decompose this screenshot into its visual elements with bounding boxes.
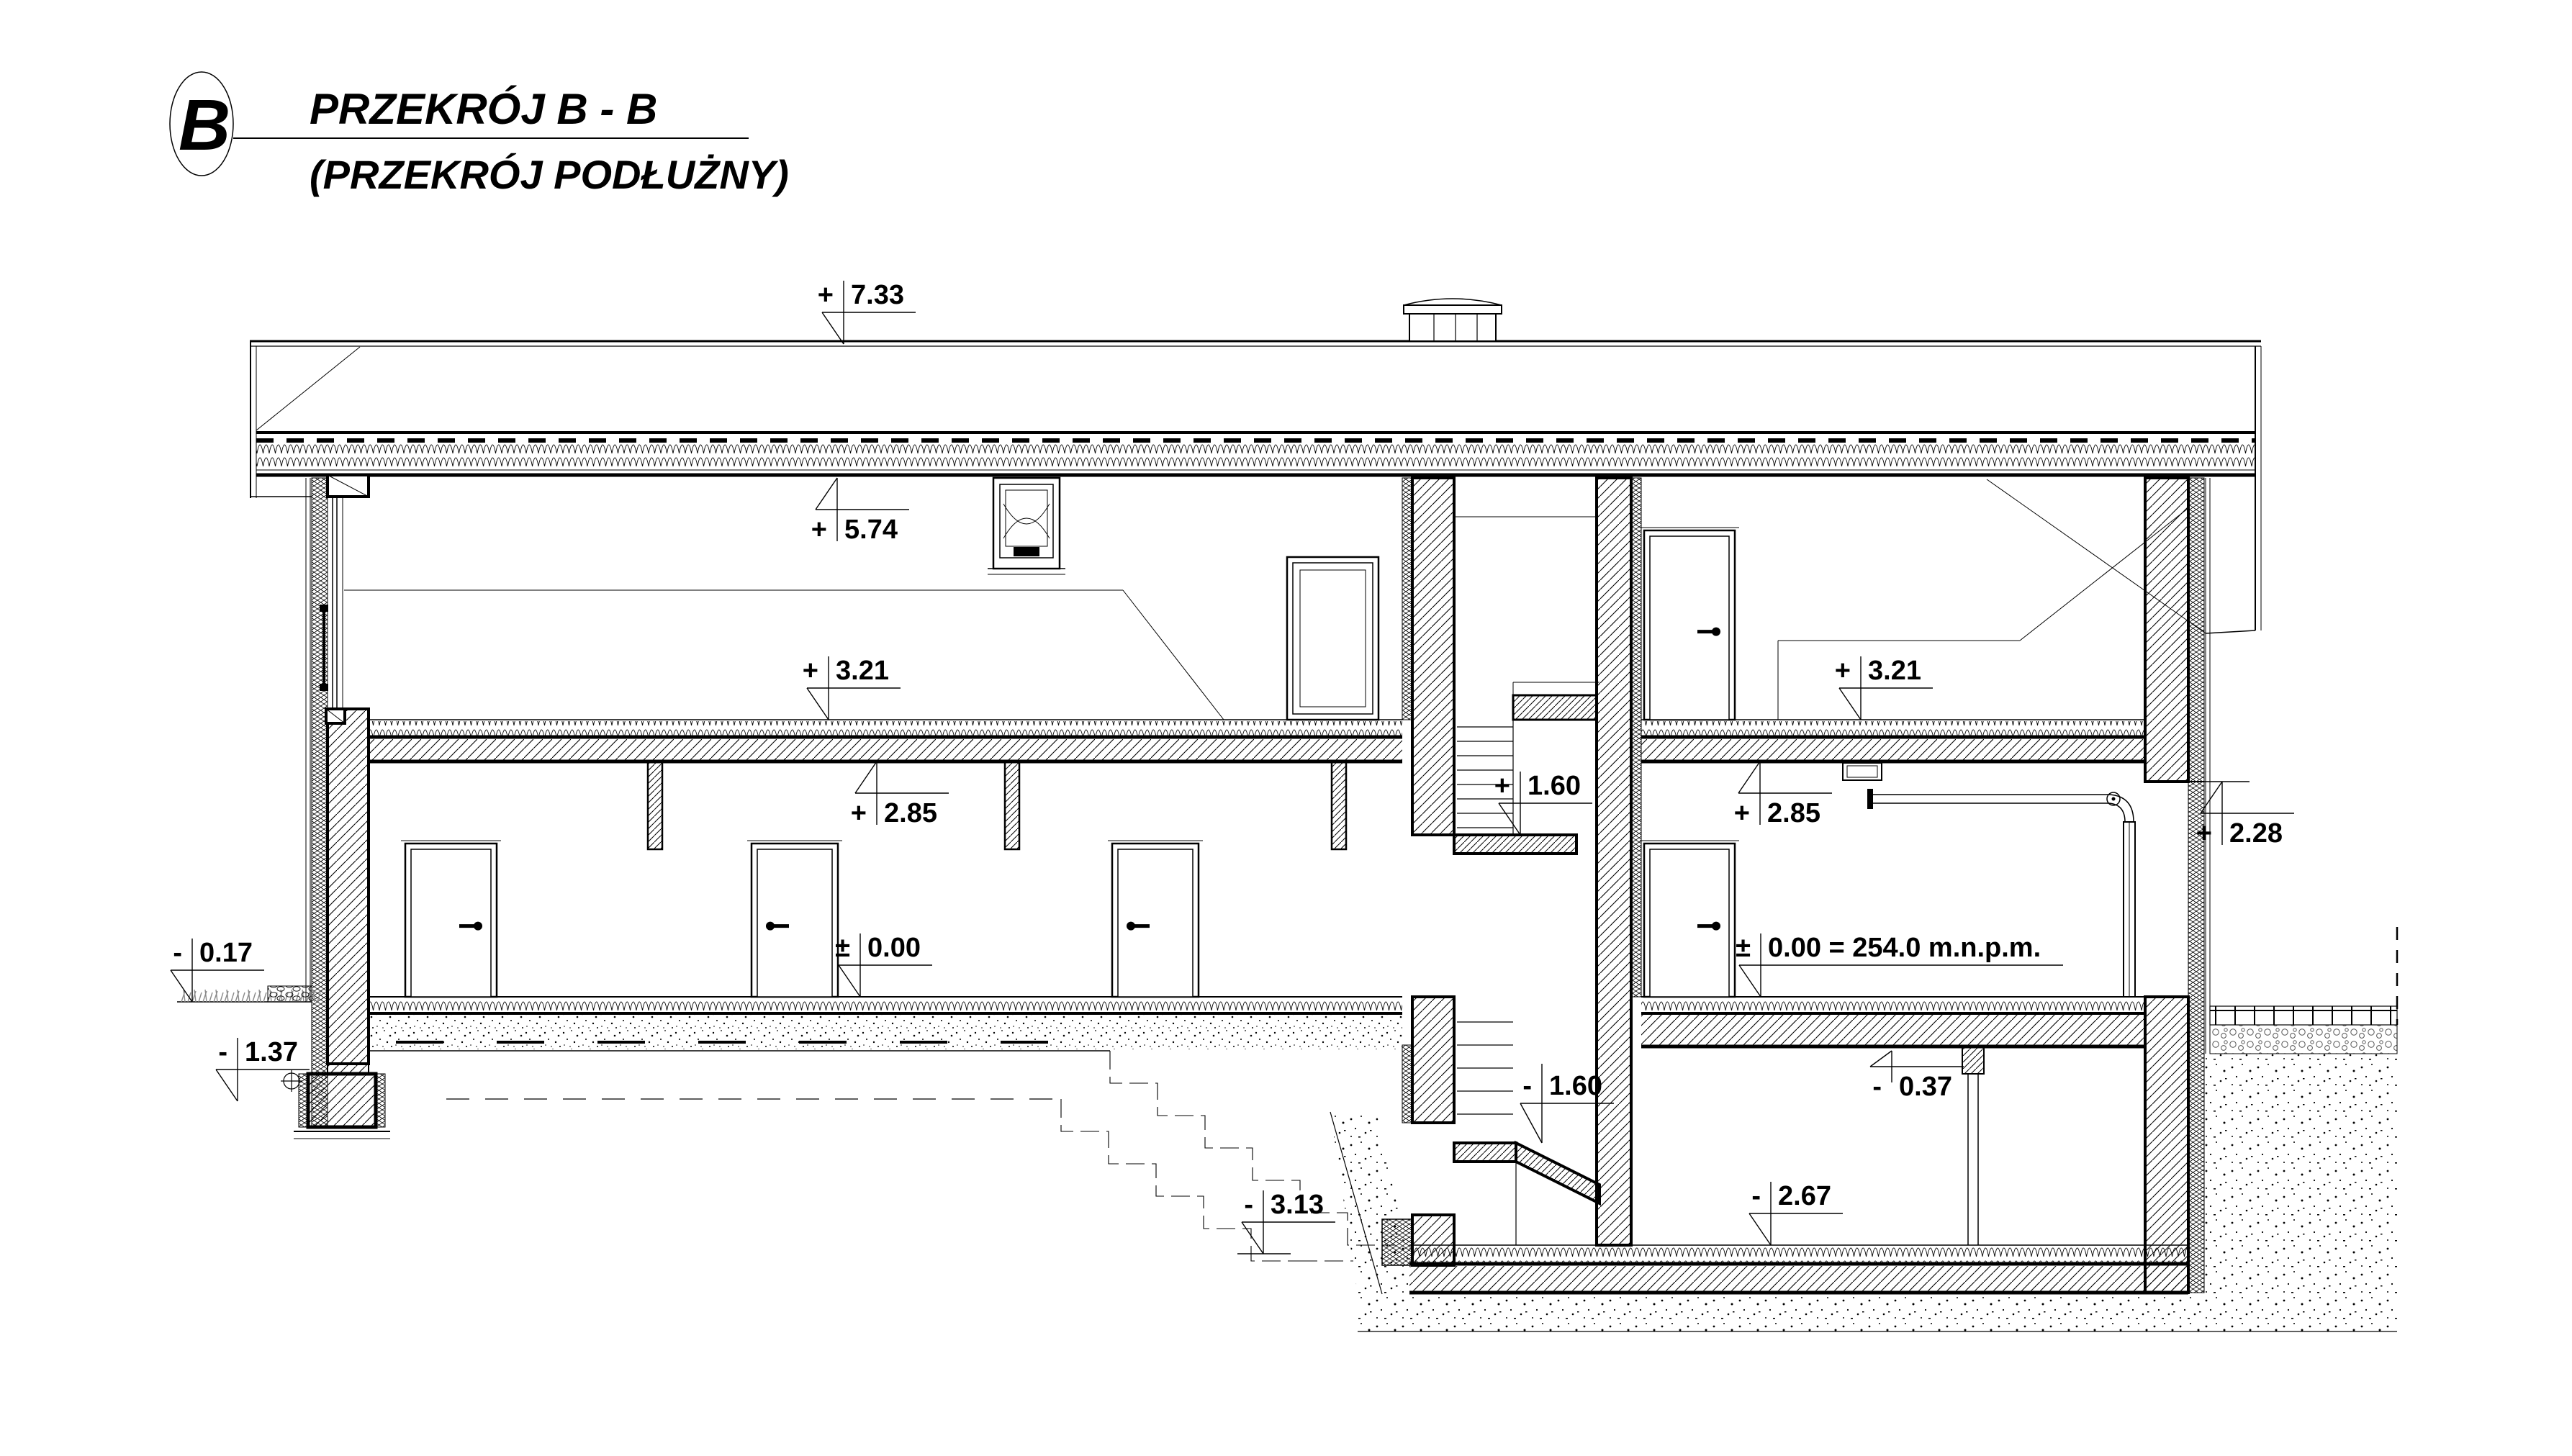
svg-text:5.74: 5.74 <box>844 515 898 545</box>
door <box>1640 528 1739 720</box>
svg-text:0.17: 0.17 <box>199 938 253 968</box>
stairwell-left-wall <box>1382 478 1454 1265</box>
landing-plus160 <box>1454 835 1576 854</box>
svg-text:1.60: 1.60 <box>1549 1071 1602 1101</box>
ground-floor-slab <box>369 997 2145 1051</box>
left-footing <box>281 1064 390 1139</box>
ceiling-lamp <box>1843 763 1882 780</box>
soil-right <box>2204 1054 2397 1294</box>
attic-stair-landing-edge <box>1513 695 1597 720</box>
section-drawing: B PRZEKRÓJ B - B (PRZEKRÓJ PODŁUŻNY) <box>0 0 2572 1456</box>
drawing-subtitle: (PRZEKRÓJ PODŁUŻNY) <box>310 152 789 197</box>
roof-insulation <box>256 444 2255 469</box>
svg-text:3.13: 3.13 <box>1271 1190 1324 1220</box>
svg-text:2.85: 2.85 <box>1767 798 1820 828</box>
svg-text:-: - <box>173 938 182 968</box>
roof-window <box>988 478 1065 574</box>
svg-text:-: - <box>1872 1072 1882 1102</box>
partition-stub <box>648 761 662 849</box>
level-marker-stair-landing-up: +1.60 <box>1494 771 1592 835</box>
level-marker-gf-floor-left: ±0.00 <box>835 933 932 997</box>
svg-text:2.67: 2.67 <box>1778 1181 1831 1211</box>
gravel-bed <box>2210 1025 2397 1054</box>
stair-treads-lower-flight <box>1457 1022 1513 1114</box>
ground-slab-left <box>369 997 1402 1051</box>
svg-text:0.00 = 254.0 m.n.p.m.: 0.00 = 254.0 m.n.p.m. <box>1768 933 2041 963</box>
pavers <box>2210 1006 2397 1025</box>
attic-floor-left-slab <box>369 720 1402 761</box>
level-marker-gf-floor-right: ±0.00 = 254.0 m.n.p.m. <box>1736 933 2063 997</box>
attic-floor-right-slab <box>1641 720 2145 761</box>
svg-text:-: - <box>1522 1071 1532 1101</box>
svg-text:3.21: 3.21 <box>1868 656 1921 686</box>
attic-floor <box>369 720 2145 761</box>
soil-wedge-left <box>1330 1112 1417 1294</box>
right-wall-above-garage-door <box>2145 478 2188 782</box>
level-marker-attic-ceiling: +5.74 <box>811 478 909 545</box>
svg-text:+: + <box>1734 798 1750 828</box>
level-marker-gf-ceiling-left: +2.85 <box>851 761 949 828</box>
svg-text:+: + <box>851 798 867 828</box>
svg-text:-: - <box>1244 1190 1253 1220</box>
right-wall-basement <box>2145 997 2188 1293</box>
svg-text:7.33: 7.33 <box>851 280 904 310</box>
roof <box>250 299 2261 633</box>
right-exterior-wall <box>2145 478 2210 1293</box>
svg-text:1.37: 1.37 <box>245 1037 298 1067</box>
partition-stub <box>1332 761 1346 849</box>
ground-bearing-layer <box>369 1015 1402 1049</box>
level-marker-roof-top: +7.33 <box>818 280 916 344</box>
door <box>401 841 501 997</box>
level-marker-attic-floor-left: +3.21 <box>803 656 901 720</box>
svg-text:0.00: 0.00 <box>867 933 921 963</box>
svg-text:2.85: 2.85 <box>884 798 937 828</box>
level-marker-basement-ceiling: -0.37 <box>1870 1051 1964 1102</box>
svg-text:+: + <box>2196 818 2212 849</box>
roof-vent-cap <box>1404 299 1502 341</box>
level-marker-gf-ceiling-right: +2.85 <box>1734 761 1832 828</box>
partition-stub <box>1005 761 1019 849</box>
ground-floor-partitions <box>648 761 1346 849</box>
left-wall-masonry <box>328 709 369 1064</box>
svg-text:1.60: 1.60 <box>1528 771 1581 801</box>
driveway-right <box>2210 927 2397 1054</box>
door <box>747 841 842 997</box>
svg-text:+: + <box>811 515 827 545</box>
svg-text:+: + <box>818 280 834 310</box>
door <box>1640 841 1739 997</box>
staircase <box>1454 517 1599 1245</box>
svg-text:+: + <box>1835 656 1851 686</box>
terrain-left <box>177 986 320 1002</box>
rubble-band <box>268 986 312 1002</box>
svg-text:±: ± <box>1736 933 1751 963</box>
right-wall-insulation <box>2188 478 2204 1293</box>
svg-text:2.28: 2.28 <box>2229 818 2283 849</box>
left-wall-insulation <box>312 478 328 1126</box>
svg-text:-: - <box>218 1037 227 1067</box>
flight-soffit <box>1516 1143 1599 1203</box>
level-marker-basement-floor: -2.67 <box>1749 1181 1843 1245</box>
stairwell-right-wall <box>1597 478 1641 1245</box>
svg-text:+: + <box>803 656 818 686</box>
landing-minus160 <box>1454 1143 1516 1162</box>
svg-text:3.21: 3.21 <box>836 656 889 686</box>
attic-back-window <box>1287 557 1378 720</box>
level-marker-attic-floor-right: +3.21 <box>1835 656 1933 720</box>
basement-partition <box>1962 1046 1984 1245</box>
title-block: B PRZEKRÓJ B - B (PRZEKRÓJ PODŁUŻNY) <box>170 72 789 197</box>
basement-floor-slab <box>1409 1245 2188 1293</box>
level-marker-footing-left: -1.37 <box>216 1037 310 1101</box>
ground-slab-right <box>1641 997 2145 1046</box>
door <box>1108 841 1203 997</box>
svg-text:±: ± <box>835 933 850 963</box>
level-marker-garage-lintel: +2.28 <box>2196 782 2294 849</box>
level-marker-ext-stair-bottom: -3.13 <box>1237 1190 1335 1254</box>
drawing-title: PRZEKRÓJ B - B <box>310 85 657 133</box>
soil-under-basement <box>1358 1294 2397 1331</box>
svg-text:-: - <box>1751 1181 1761 1211</box>
svg-text:+: + <box>1494 771 1510 801</box>
section-letter: B <box>179 85 230 166</box>
svg-text:0.37: 0.37 <box>1899 1072 1952 1102</box>
